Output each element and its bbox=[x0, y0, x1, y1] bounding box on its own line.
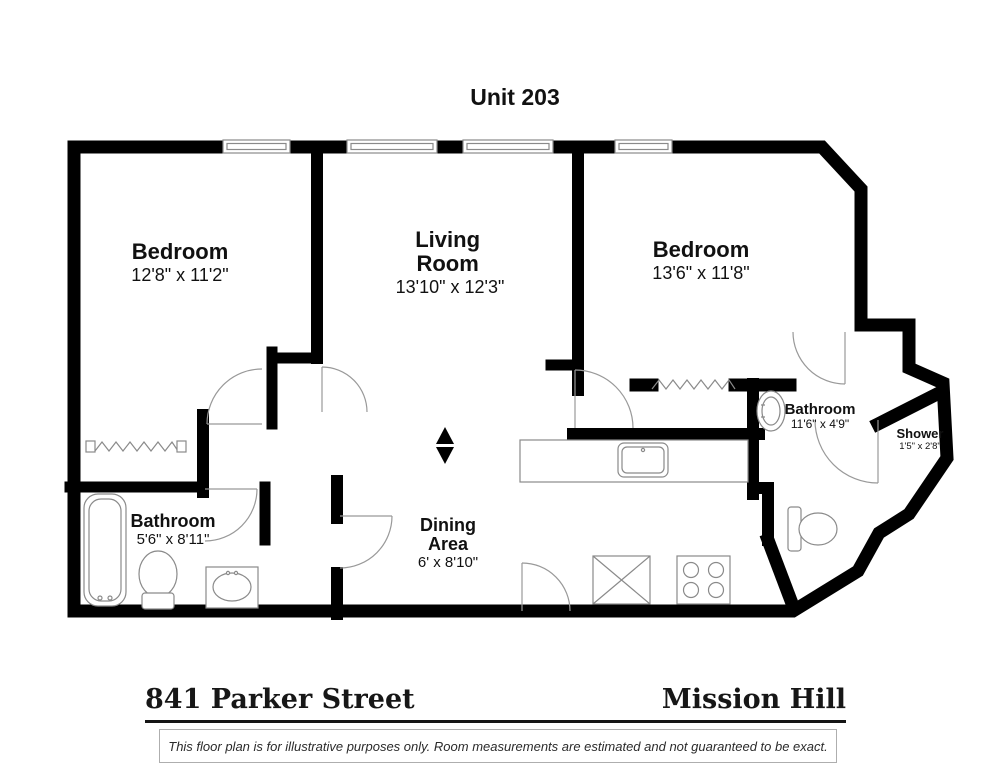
room-name: Bathroom bbox=[785, 402, 856, 418]
north-arrow-icon bbox=[436, 427, 454, 464]
room-name: Bathroom bbox=[131, 512, 216, 531]
stove bbox=[677, 556, 730, 604]
room-label-bedroom-right: Bedroom 13'6" x 11'8" bbox=[652, 238, 749, 283]
disclaimer-text: This floor plan is for illustrative purp… bbox=[168, 739, 828, 754]
door-left-bedroom bbox=[207, 369, 262, 424]
floor-plan-drawing bbox=[0, 0, 994, 768]
bathroom-sink bbox=[206, 567, 258, 608]
room-dims: 13'6" x 11'8" bbox=[652, 263, 749, 283]
room-label-bathroom-left: Bathroom 5'6" x 8'11" bbox=[131, 512, 216, 548]
door-entry bbox=[522, 563, 570, 611]
bathtub bbox=[84, 494, 126, 606]
kitchen-sink bbox=[618, 443, 668, 477]
room-name: Bedroom bbox=[131, 240, 228, 264]
floor-plan-page: Unit 203 Bedroom 12'8" x 11'2" Living Ro… bbox=[0, 0, 994, 768]
room-dims: 12'8" x 11'2" bbox=[131, 265, 228, 285]
room-label-shower: Shower 1'5" x 2'8" bbox=[897, 427, 944, 452]
room-dims: 1'5" x 2'8" bbox=[897, 441, 944, 452]
closet-rod-right-bedroom bbox=[652, 380, 735, 389]
room-label-dining-area: Dining Area 6' x 8'10" bbox=[413, 516, 483, 571]
door-right-bedroom bbox=[793, 332, 845, 384]
room-label-bathroom-right: Bathroom 11'6" x 4'9" bbox=[785, 402, 856, 431]
toilet bbox=[139, 551, 177, 609]
window bbox=[223, 140, 290, 153]
room-dims: 5'6" x 8'11" bbox=[131, 531, 216, 548]
door-hall-living bbox=[322, 367, 367, 412]
refrigerator bbox=[593, 556, 650, 604]
room-dims: 11'6" x 4'9" bbox=[785, 418, 856, 431]
footer-neighborhood: Mission Hill bbox=[662, 684, 846, 715]
room-dims: 13'10" x 12'3" bbox=[396, 277, 505, 297]
room-dims: 6' x 8'10" bbox=[413, 554, 483, 571]
window bbox=[615, 140, 672, 153]
fixtures bbox=[84, 391, 837, 609]
room-name: Bedroom bbox=[652, 238, 749, 262]
room-name: Living Room bbox=[396, 228, 500, 276]
footer-address: 841 Parker Street bbox=[145, 684, 415, 715]
toilet-right bbox=[788, 507, 837, 551]
room-name: Dining Area bbox=[413, 516, 483, 554]
unit-title: Unit 203 bbox=[470, 84, 559, 111]
footer-divider bbox=[145, 720, 846, 723]
room-label-bedroom-left: Bedroom 12'8" x 11'2" bbox=[131, 240, 228, 285]
bathroom-sink-right bbox=[757, 391, 785, 431]
room-label-living-room: Living Room 13'10" x 12'3" bbox=[396, 228, 505, 297]
room-name: Shower bbox=[897, 427, 944, 441]
closet-rod-left-bedroom bbox=[95, 442, 178, 451]
door-hall-dining bbox=[340, 516, 392, 568]
window bbox=[463, 140, 553, 153]
disclaimer-box: This floor plan is for illustrative purp… bbox=[159, 729, 837, 763]
window bbox=[347, 140, 437, 153]
